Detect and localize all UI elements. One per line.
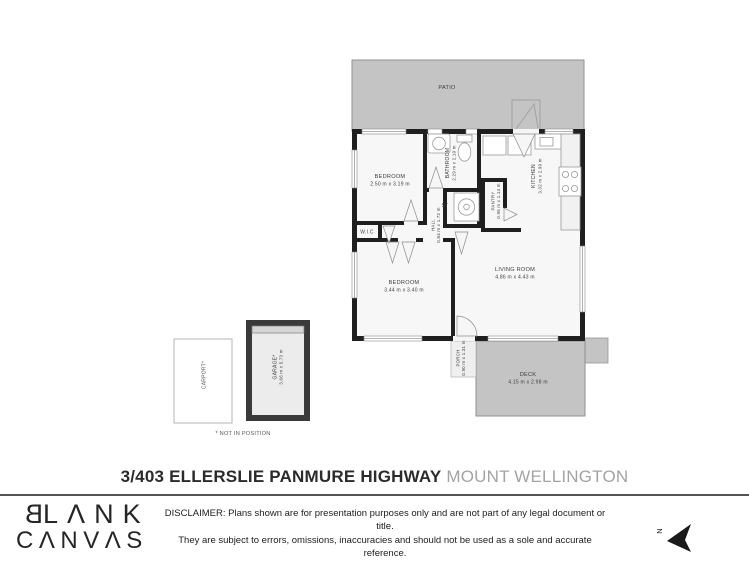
blank-canvas-logo: BLΛNK CΛNVΛS (16, 501, 150, 554)
not-in-position-note: * NOT IN POSITION (215, 431, 270, 437)
page-title: 3/403 ELLERSLIE PANMURE HIGHWAY MOUNT WE… (0, 467, 749, 487)
logo-line1: BLΛNK (16, 501, 150, 528)
stove-icon (559, 167, 581, 196)
washer-box (454, 193, 479, 221)
floor-plan-page: PATIO (0, 0, 749, 562)
divider-line (0, 494, 749, 496)
pantry-label: PANTRY (491, 192, 496, 211)
living-room-label: LIVING ROOM (495, 267, 535, 273)
porch-label: PORCH (456, 349, 461, 366)
north-arrow: N (645, 515, 705, 561)
bathroom-label: BATHROOM (445, 148, 451, 179)
living-room-dims: 4.86 m x 4.43 m (495, 275, 535, 281)
disclaimer-text: DISCLAIMER: Plans shown are for presenta… (160, 507, 610, 562)
kitchen-dims: 3.32 m x 2.99 m (538, 158, 543, 193)
porch-dims: 0.90 m x 1.31 m (461, 340, 466, 375)
north-arrow-icon (667, 524, 691, 552)
store-label: ST (442, 203, 449, 209)
deck-label: DECK (520, 372, 537, 378)
hall-dims: 0.84 m x 1.72 m (436, 207, 441, 242)
floor-plan: PATIO (0, 0, 749, 462)
toilet-tank-icon (457, 135, 472, 142)
bedroom2-label: BEDROOM (389, 280, 420, 286)
pantry-dims: 0.95 m x 1.14 m (496, 183, 501, 218)
carport-label: CARPORT* (202, 361, 208, 389)
garage: GARAGE* 3.66 m x 5.73 m (246, 320, 310, 421)
kitchen-sink-icon (535, 134, 562, 149)
wic-label: W.I.C (360, 230, 374, 236)
logo-mirrored-b: B (16, 501, 43, 528)
deck-dims: 4.15 m x 2.98 m (508, 380, 548, 386)
title-suburb: MOUNT WELLINGTON (446, 467, 628, 486)
deck (476, 341, 585, 416)
garage-dims: 3.66 m x 5.73 m (279, 349, 284, 384)
title-street: 3/403 ELLERSLIE PANMURE HIGHWAY (121, 467, 442, 486)
patio-label: PATIO (438, 85, 456, 91)
deck-side-extension (584, 338, 608, 363)
carport: CARPORT* (174, 339, 232, 423)
disclaimer-line-1: DISCLAIMER: Plans shown are for presenta… (160, 507, 610, 534)
hall-label: HALL (431, 219, 436, 231)
logo-line2: CΛNVΛS (16, 528, 150, 554)
porch-door-gap (453, 336, 475, 341)
bathroom-dims: 2.29 m x 2.19 m (452, 145, 457, 180)
toilet-bowl-icon (458, 143, 471, 161)
garage-door-icon (252, 326, 304, 333)
bedroom1-dims: 2.50 m x 3.19 m (370, 182, 410, 188)
entry-door-gap (513, 129, 539, 134)
bedroom2-dims: 3.44 m x 3.40 m (384, 288, 424, 294)
disclaimer-line-2: They are subject to errors, omissions, i… (160, 534, 610, 561)
logo-line1-rest: LΛNK (43, 499, 150, 529)
fridge-icon (483, 136, 506, 155)
kitchen-label: KITCHEN (531, 164, 537, 188)
north-label: N (655, 528, 664, 533)
patio: PATIO (352, 60, 584, 131)
bedroom1-label: BEDROOM (375, 174, 406, 180)
